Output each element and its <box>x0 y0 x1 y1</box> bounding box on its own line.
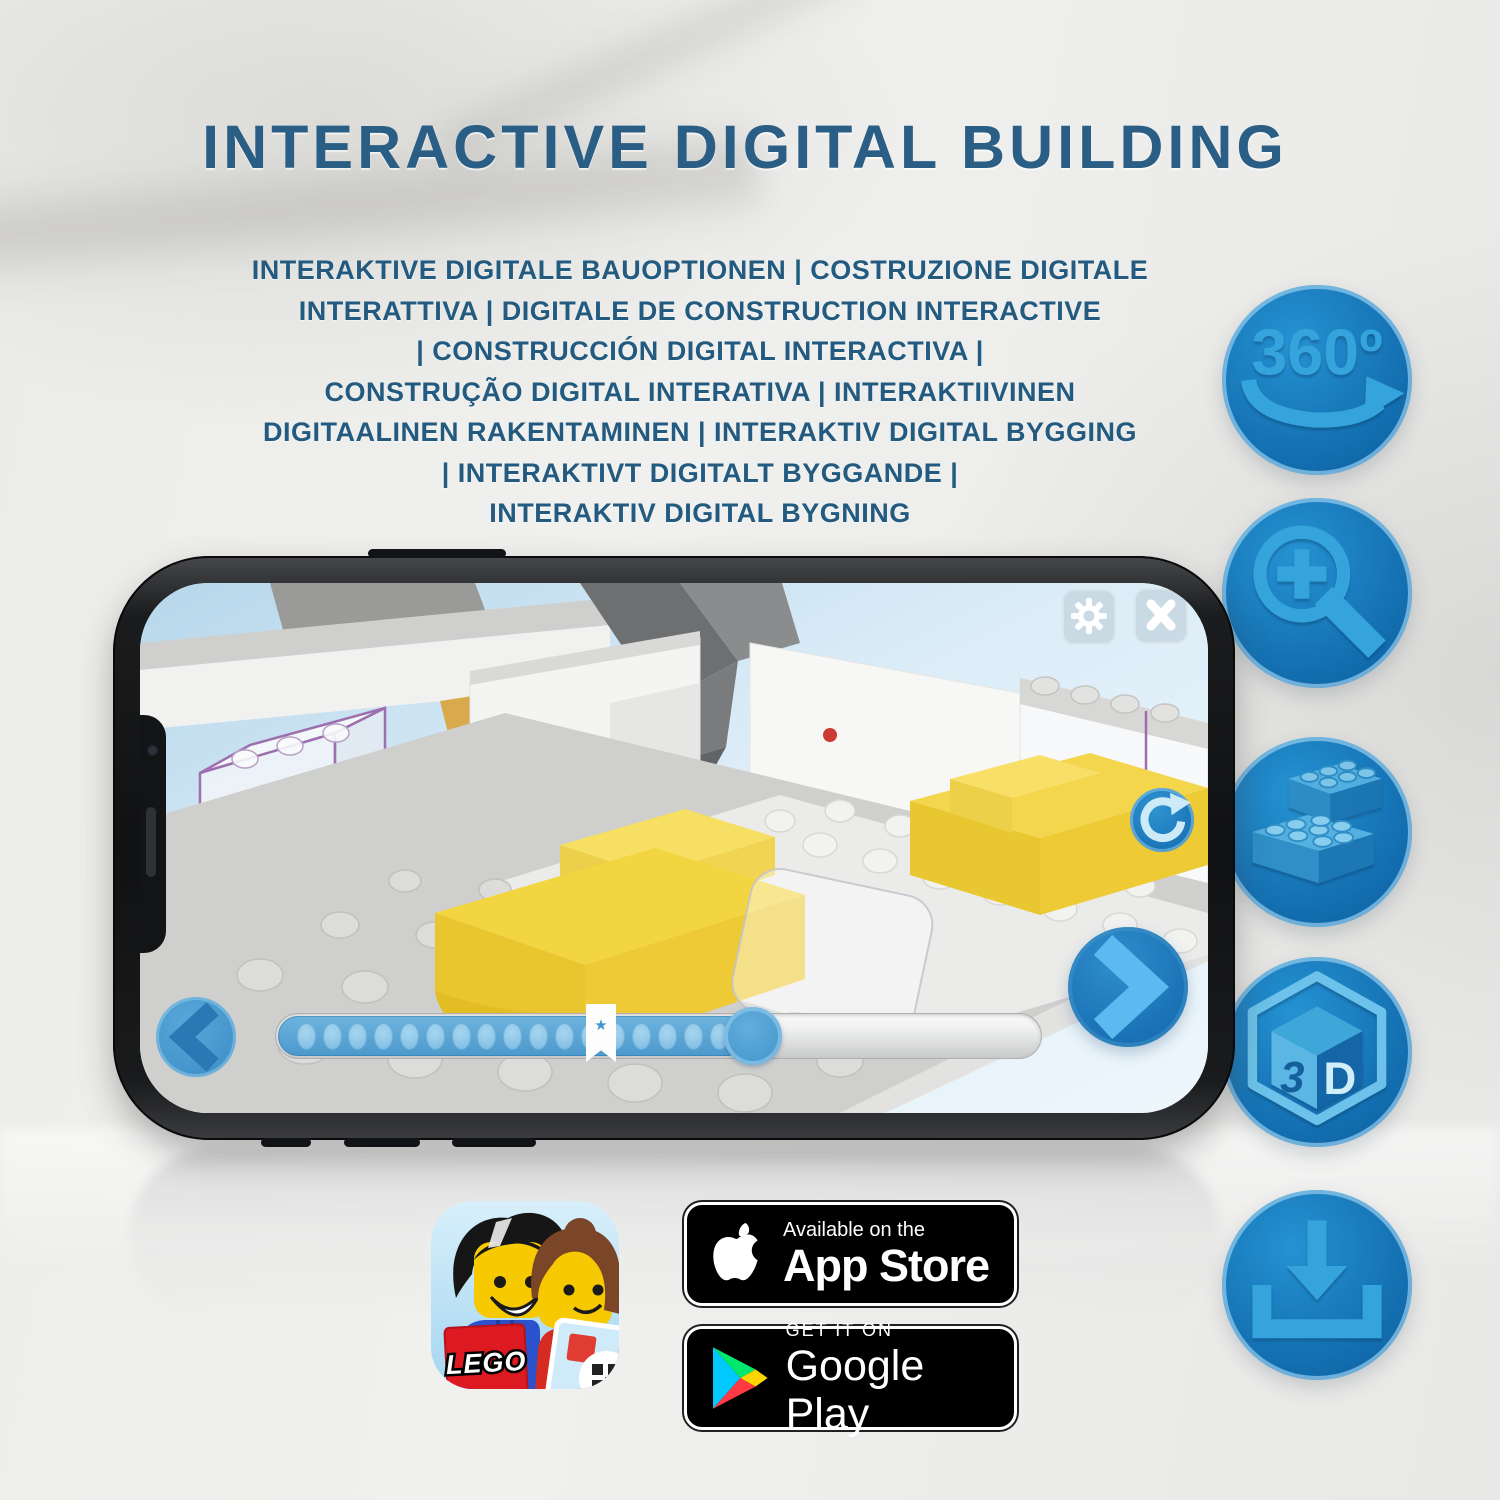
phone-volume-button <box>452 1138 536 1147</box>
chevron-right-icon <box>1068 927 1188 1047</box>
subtitle-line: | CONSTRUCCIÓN DIGITAL INTERACTIVA | <box>60 331 1340 372</box>
subtitle-line: INTERATTIVA | DIGITALE DE CONSTRUCTION I… <box>60 291 1340 332</box>
google-play-name: Google Play <box>786 1342 1014 1438</box>
progress-dot <box>374 1023 393 1050</box>
feature-download <box>1222 1190 1412 1380</box>
progress-dots <box>278 1016 748 1056</box>
subtitle-line: CONSTRUÇÃO DIGITAL INTERATIVA | INTERAKT… <box>60 372 1340 413</box>
app-store-text: Available on the App Store <box>783 1218 989 1290</box>
close-button[interactable] <box>1134 588 1188 644</box>
next-step-button[interactable] <box>1068 927 1188 1047</box>
multilanguage-subtitle: INTERAKTIVE DIGITALE BAUOPTIONEN | COSTR… <box>60 250 1340 534</box>
page-title: INTERACTIVE DIGITAL BUILDING <box>0 112 1490 182</box>
phone-power-button <box>368 549 506 558</box>
front-camera <box>147 745 158 756</box>
google-play-icon <box>713 1346 768 1410</box>
360-rotation-icon: 360º <box>1222 285 1412 475</box>
phone-mute-switch <box>261 1138 311 1147</box>
feature-360-rotation: 360º <box>1222 285 1412 475</box>
progress-dot <box>684 1023 703 1050</box>
google-play-tagline: GET IT ON <box>786 1318 1014 1342</box>
cube-letter-3: 3 <box>1280 1053 1304 1102</box>
download-icon <box>1222 1190 1412 1380</box>
subtitle-line: DIGITAALINEN RAKENTAMINEN | INTERAKTIV D… <box>60 412 1340 453</box>
phone-mockup: ★ <box>113 556 1235 1140</box>
progress-dot <box>632 1023 651 1050</box>
phone-notch <box>140 715 166 953</box>
feature-brick-building <box>1222 737 1412 927</box>
progress-dot <box>348 1023 367 1050</box>
lego-wordmark: LEGO <box>445 1346 527 1380</box>
subtitle-line: INTERAKTIVE DIGITALE BAUOPTIONEN | COSTR… <box>60 250 1340 291</box>
progress-dot <box>529 1023 548 1050</box>
app-store-tagline: Available on the <box>783 1218 989 1242</box>
star-icon: ★ <box>594 1017 607 1034</box>
phone-reflection <box>130 1148 1220 1318</box>
cube-letter-d: D <box>1323 1053 1356 1104</box>
chevron-left-icon <box>156 997 236 1077</box>
close-icon <box>1141 595 1181 635</box>
rotate-view-button[interactable] <box>1130 788 1194 852</box>
lego-app-icon[interactable]: LEGO <box>428 1198 622 1392</box>
subtitle-line: INTERAKTIV DIGITAL BYGNING <box>60 493 1340 534</box>
google-play-badge[interactable]: GET IT ON Google Play <box>684 1326 1017 1430</box>
feature-zoom <box>1222 498 1412 688</box>
progress-dot <box>503 1023 522 1050</box>
progress-dot <box>452 1023 471 1050</box>
phone-screen: ★ <box>140 583 1208 1113</box>
previous-step-button[interactable] <box>156 997 236 1077</box>
progress-dot <box>400 1023 419 1050</box>
subtitle-line: | INTERAKTIVT DIGITALT BYGGANDE | <box>60 453 1340 494</box>
progress-dot <box>477 1023 496 1050</box>
progress-dot <box>323 1023 342 1050</box>
zoom-in-icon <box>1222 498 1412 688</box>
progress-bar[interactable]: ★ <box>275 1013 1042 1059</box>
app-store-name: App Store <box>783 1242 989 1290</box>
phone-volume-button <box>344 1138 420 1147</box>
progress-dot <box>426 1023 445 1050</box>
progress-slider-knob[interactable] <box>724 1007 782 1065</box>
google-play-text: GET IT ON Google Play <box>786 1318 1014 1438</box>
360-label: 360º <box>1251 316 1382 388</box>
progress-dot <box>297 1023 316 1050</box>
apple-icon <box>713 1223 765 1285</box>
feature-3d-view: 3 D <box>1222 957 1412 1147</box>
progress-dot <box>658 1023 677 1050</box>
3d-cube-icon: 3 D <box>1222 957 1412 1147</box>
progress-dot <box>555 1023 574 1050</box>
earpiece-speaker <box>146 807 156 877</box>
app-store-badge[interactable]: Available on the App Store <box>684 1202 1017 1306</box>
brick-icon <box>1222 737 1412 927</box>
gear-icon <box>1069 596 1109 636</box>
settings-button[interactable] <box>1062 589 1116 645</box>
rotate-icon <box>1130 788 1194 852</box>
